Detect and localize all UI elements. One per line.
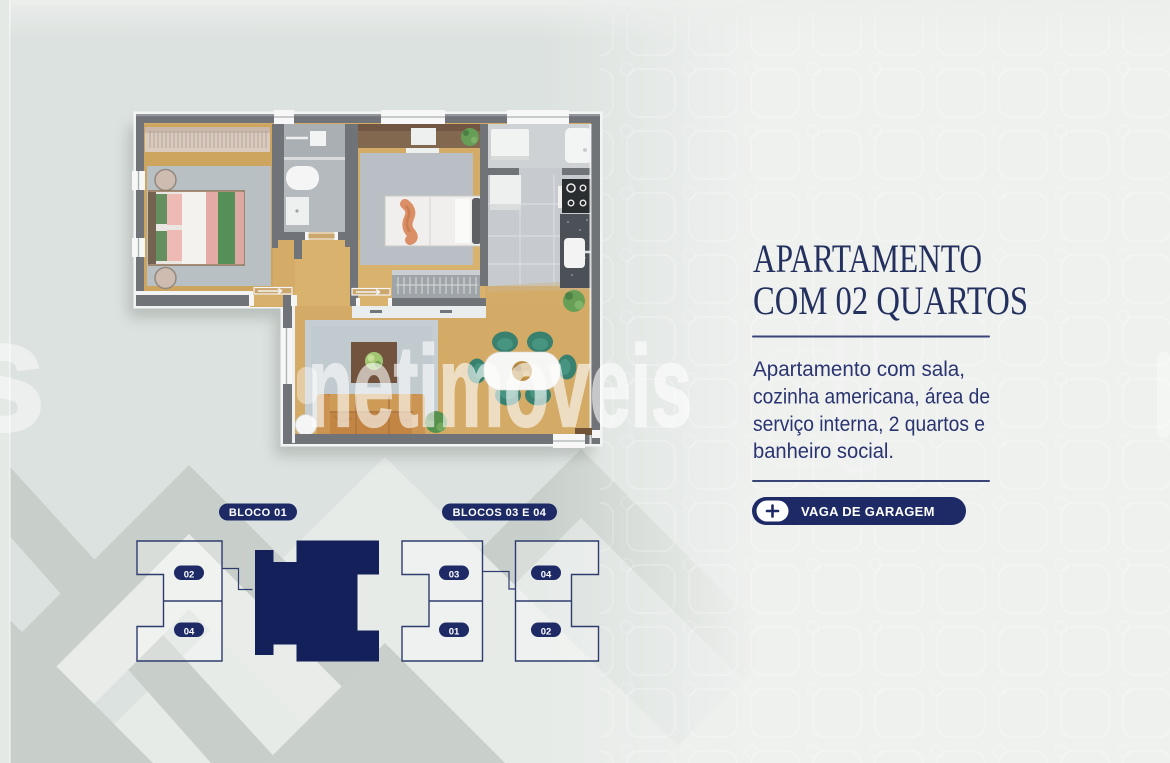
svg-text:VAGA DE GARAGEM: VAGA DE GARAGEM [801,504,935,519]
svg-text:COM 02 QUARTOS: COM 02 QUARTOS [753,278,1028,323]
svg-text:04: 04 [541,570,552,581]
svg-text:Apartamento com sala,: Apartamento com sala, [753,357,965,381]
svg-text:BLOCOS 03 E 04: BLOCOS 03 E 04 [453,507,547,519]
svg-text:s: s [0,288,46,464]
svg-text:APARTAMENTO: APARTAMENTO [753,236,982,281]
svg-text:serviço interna, 2 quartos e: serviço interna, 2 quartos e [753,412,985,436]
svg-text:BLOCO 01: BLOCO 01 [229,507,287,519]
svg-text:03: 03 [449,570,460,581]
svg-text:01: 01 [449,627,460,638]
svg-text:netimoveis: netimoveis [308,323,692,451]
svg-text:banheiro social.: banheiro social. [753,439,894,463]
svg-text:02: 02 [184,570,195,581]
svg-text:04: 04 [184,627,195,638]
svg-text:cozinha americana, área de: cozinha americana, área de [753,384,990,408]
svg-text:02: 02 [541,627,552,638]
